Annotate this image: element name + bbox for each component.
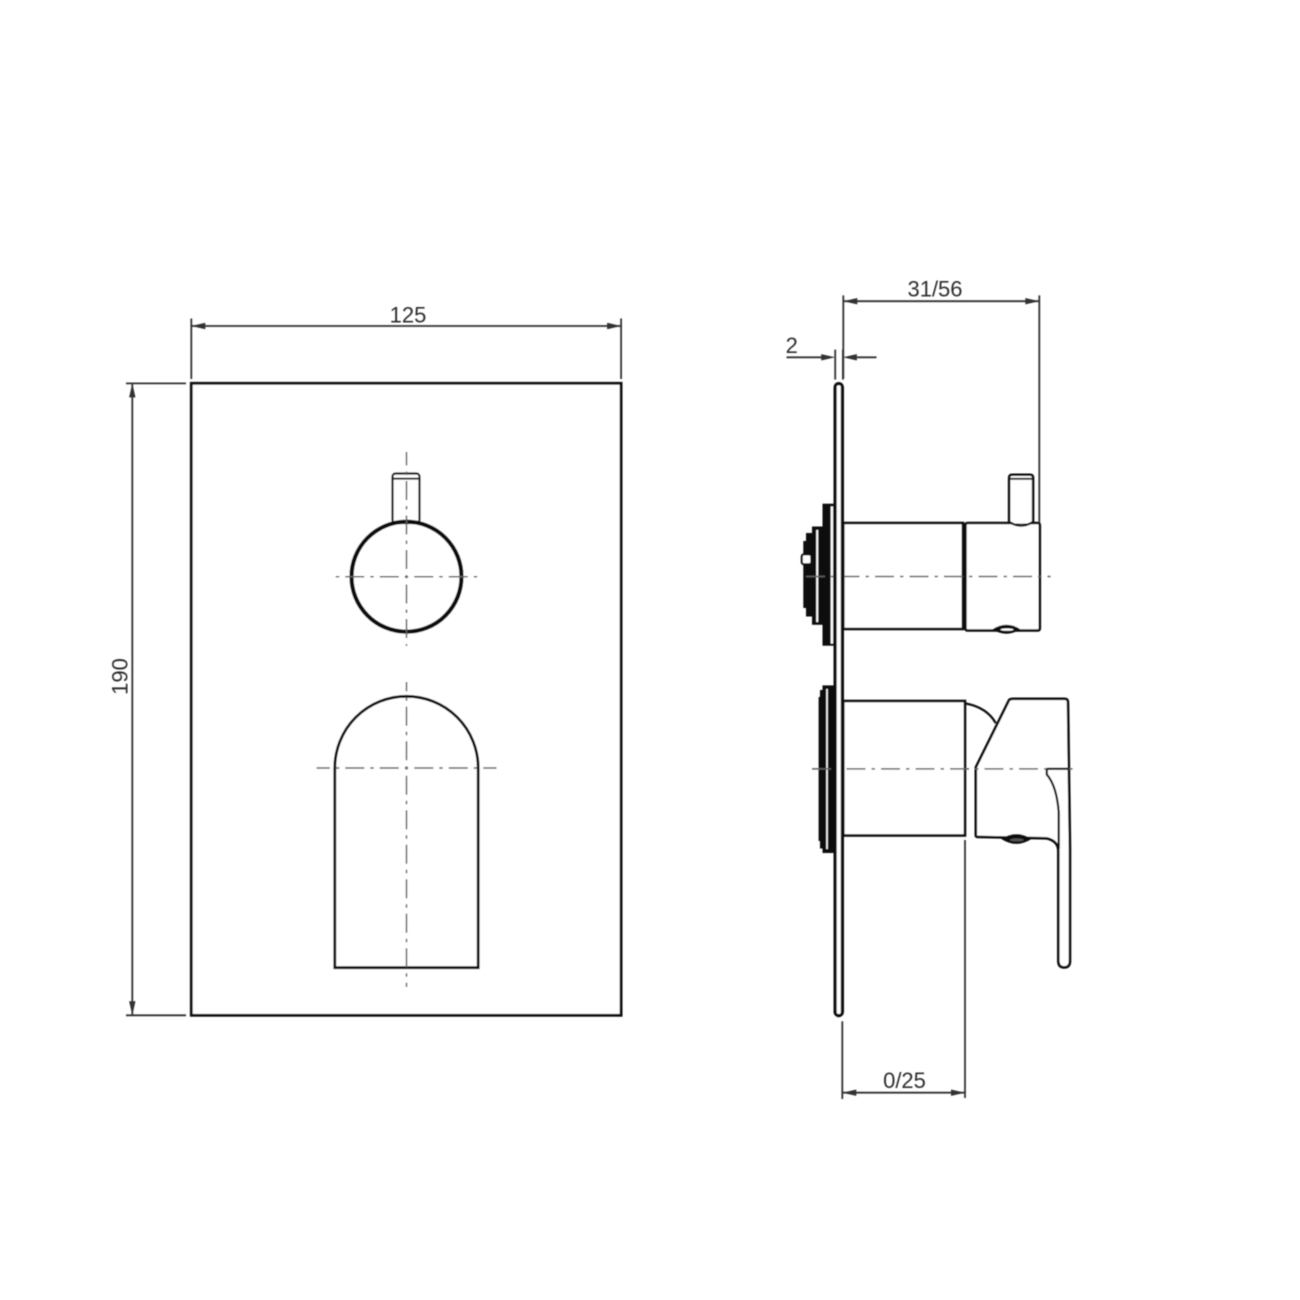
- svg-text:0/25: 0/25: [883, 1068, 926, 1093]
- svg-text:190: 190: [108, 658, 133, 695]
- svg-text:31/56: 31/56: [907, 277, 962, 302]
- svg-text:2: 2: [786, 333, 798, 358]
- svg-text:125: 125: [390, 303, 427, 328]
